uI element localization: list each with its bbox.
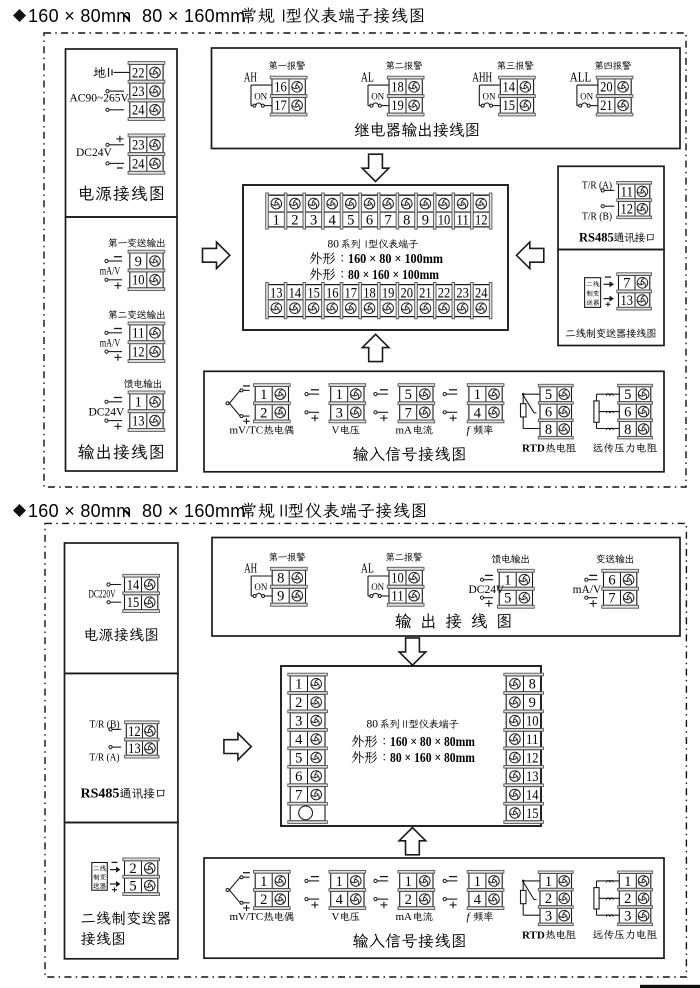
svg-text:3: 3 xyxy=(310,213,317,229)
svg-text:ON: ON xyxy=(580,91,593,101)
svg-text:mV/TC: mV/TC xyxy=(230,425,264,437)
svg-text:13: 13 xyxy=(621,293,634,309)
svg-text:24: 24 xyxy=(132,156,145,172)
svg-text:19: 19 xyxy=(391,98,404,114)
svg-text:11: 11 xyxy=(132,326,145,342)
svg-text:9: 9 xyxy=(529,695,536,711)
svg-text:22: 22 xyxy=(438,285,451,301)
svg-text:11: 11 xyxy=(391,589,404,605)
svg-text:23: 23 xyxy=(456,285,469,301)
svg-text:mV/TC: mV/TC xyxy=(230,911,264,923)
svg-text:80: 80 xyxy=(328,239,340,251)
svg-text:ON: ON xyxy=(254,582,267,592)
svg-text:4: 4 xyxy=(336,892,344,908)
svg-text:6: 6 xyxy=(295,769,302,785)
svg-text:7: 7 xyxy=(608,591,615,607)
svg-text:13: 13 xyxy=(132,414,145,430)
svg-text:7: 7 xyxy=(405,405,412,421)
svg-text:12: 12 xyxy=(475,213,488,229)
svg-text:7: 7 xyxy=(384,213,391,229)
svg-text:1: 1 xyxy=(504,573,511,589)
svg-text:9: 9 xyxy=(135,254,142,270)
svg-text:ON: ON xyxy=(371,91,384,101)
svg-text:11: 11 xyxy=(456,213,469,229)
svg-text:20: 20 xyxy=(400,285,413,301)
svg-text:mA/V: mA/V xyxy=(573,584,602,596)
svg-text:DC24V: DC24V xyxy=(89,406,125,418)
svg-text:RTD: RTD xyxy=(522,443,545,455)
svg-text:mA: mA xyxy=(396,911,413,923)
svg-text:15: 15 xyxy=(503,98,516,114)
svg-text:160 × 80 × 80mm: 160 × 80 × 80mm xyxy=(390,735,475,750)
svg-text:13: 13 xyxy=(526,769,539,785)
svg-text:AL: AL xyxy=(361,70,374,85)
svg-text:3: 3 xyxy=(336,405,343,421)
svg-text:24: 24 xyxy=(475,285,488,301)
svg-text:16: 16 xyxy=(274,80,287,96)
svg-text:1: 1 xyxy=(295,677,302,693)
svg-text:6: 6 xyxy=(624,405,631,421)
svg-text:7: 7 xyxy=(295,787,302,803)
svg-text:80 × 160mm: 80 × 160mm xyxy=(142,6,246,26)
svg-text:4: 4 xyxy=(474,405,482,421)
svg-text:RS485: RS485 xyxy=(81,787,120,802)
svg-text:T/R (A): T/R (A) xyxy=(582,180,612,192)
svg-text:AC90~265V: AC90~265V xyxy=(70,93,130,105)
svg-text:1: 1 xyxy=(545,874,552,890)
svg-text:12: 12 xyxy=(132,345,145,361)
svg-text:5: 5 xyxy=(129,878,136,894)
svg-text:14: 14 xyxy=(503,80,516,96)
svg-text:22: 22 xyxy=(132,65,145,81)
svg-text:DC220V: DC220V xyxy=(89,589,116,601)
svg-text:ON: ON xyxy=(254,91,267,101)
svg-text:14: 14 xyxy=(526,787,539,803)
svg-text:5: 5 xyxy=(545,387,552,403)
svg-text:80 × 160mm: 80 × 160mm xyxy=(142,501,246,521)
svg-text:23: 23 xyxy=(132,84,145,100)
svg-text:8: 8 xyxy=(624,422,631,438)
svg-text:19: 19 xyxy=(382,285,395,301)
svg-text:7: 7 xyxy=(623,276,630,292)
svg-text:14: 14 xyxy=(127,577,140,593)
svg-text:24: 24 xyxy=(132,103,145,119)
svg-text:V: V xyxy=(332,911,340,923)
svg-text:4: 4 xyxy=(329,213,337,229)
svg-text:T/R (A): T/R (A) xyxy=(90,752,120,764)
svg-text:2: 2 xyxy=(295,695,302,711)
svg-text:1: 1 xyxy=(135,395,142,411)
svg-text:4: 4 xyxy=(474,892,482,908)
svg-text:20: 20 xyxy=(600,80,613,96)
svg-text:17: 17 xyxy=(274,98,287,114)
svg-text:2: 2 xyxy=(405,892,412,908)
svg-text:11: 11 xyxy=(526,732,539,748)
svg-text:9: 9 xyxy=(422,213,429,229)
svg-text:2: 2 xyxy=(291,213,298,229)
svg-text:2: 2 xyxy=(545,891,552,907)
svg-text:5: 5 xyxy=(624,387,631,403)
svg-text:8: 8 xyxy=(545,422,552,438)
svg-text:2: 2 xyxy=(260,892,267,908)
svg-text:1: 1 xyxy=(273,213,280,229)
svg-text:3: 3 xyxy=(624,909,631,925)
svg-text:160 × 80mm: 160 × 80mm xyxy=(28,6,132,26)
svg-text:T/R (B): T/R (B) xyxy=(582,211,612,223)
svg-text:13: 13 xyxy=(270,285,283,301)
svg-text:1: 1 xyxy=(260,874,267,890)
svg-text:2: 2 xyxy=(129,861,136,877)
svg-text:17: 17 xyxy=(345,285,358,301)
svg-text:AHH: AHH xyxy=(472,70,492,85)
svg-text:DC24V: DC24V xyxy=(469,584,505,596)
svg-text:5: 5 xyxy=(347,213,354,229)
svg-text:16: 16 xyxy=(326,285,339,301)
svg-text:8: 8 xyxy=(529,677,536,693)
svg-text:21: 21 xyxy=(419,285,432,301)
svg-text:160 × 80 × 100mm: 160 × 80 × 100mm xyxy=(348,252,443,267)
svg-text:1: 1 xyxy=(474,874,481,890)
svg-text:12: 12 xyxy=(128,724,141,740)
svg-text:1: 1 xyxy=(336,874,343,890)
svg-text:8: 8 xyxy=(277,571,284,587)
svg-text:4: 4 xyxy=(295,732,303,748)
svg-text:3: 3 xyxy=(545,909,552,925)
svg-text:T/R (B): T/R (B) xyxy=(90,719,120,731)
svg-text:3: 3 xyxy=(295,714,302,730)
svg-text:9: 9 xyxy=(277,589,284,605)
svg-text:11: 11 xyxy=(621,184,634,200)
svg-text:V: V xyxy=(332,425,340,437)
svg-text:12: 12 xyxy=(621,202,634,218)
svg-text:15: 15 xyxy=(526,806,539,822)
svg-text:10: 10 xyxy=(391,571,404,587)
svg-text:ALL: ALL xyxy=(570,70,592,85)
svg-text:5: 5 xyxy=(405,387,412,403)
svg-text:18: 18 xyxy=(363,285,376,301)
svg-text:160 × 80mm: 160 × 80mm xyxy=(28,501,132,521)
svg-text:10: 10 xyxy=(132,273,145,289)
svg-text:ON: ON xyxy=(483,91,496,101)
svg-text:1: 1 xyxy=(260,387,267,403)
svg-text:80: 80 xyxy=(367,719,379,731)
svg-text:AH: AH xyxy=(244,70,257,85)
svg-text:mA/V: mA/V xyxy=(100,337,121,349)
svg-text:8: 8 xyxy=(403,213,410,229)
svg-text:10: 10 xyxy=(526,714,539,730)
svg-text:mA/V: mA/V xyxy=(100,266,121,278)
svg-text:1: 1 xyxy=(474,387,481,403)
svg-text:2: 2 xyxy=(260,405,267,421)
svg-text:10: 10 xyxy=(438,213,451,229)
svg-text:23: 23 xyxy=(132,138,145,154)
svg-text:2: 2 xyxy=(624,891,631,907)
svg-text:6: 6 xyxy=(366,213,373,229)
svg-text:RS485: RS485 xyxy=(579,230,614,244)
svg-text:6: 6 xyxy=(545,405,552,421)
svg-text:1: 1 xyxy=(405,874,412,890)
svg-text:80 × 160 × 100mm: 80 × 160 × 100mm xyxy=(348,268,439,283)
svg-text:AH: AH xyxy=(244,561,257,576)
svg-text:15: 15 xyxy=(127,595,140,611)
svg-text:mA: mA xyxy=(396,425,413,437)
svg-text:21: 21 xyxy=(600,98,613,114)
svg-text:5: 5 xyxy=(295,751,302,767)
svg-text:13: 13 xyxy=(128,741,141,757)
svg-text:15: 15 xyxy=(307,285,320,301)
svg-text:DC24V: DC24V xyxy=(76,147,112,159)
svg-text:18: 18 xyxy=(391,80,404,96)
svg-text:14: 14 xyxy=(289,285,302,301)
svg-text:1: 1 xyxy=(336,387,343,403)
svg-text:12: 12 xyxy=(526,751,539,767)
svg-text:6: 6 xyxy=(608,573,615,589)
svg-text:AL: AL xyxy=(361,561,374,576)
svg-text:ON: ON xyxy=(371,582,384,592)
svg-text:5: 5 xyxy=(504,591,511,607)
svg-text:RTD: RTD xyxy=(522,929,545,941)
svg-text:80 × 160 × 80mm: 80 × 160 × 80mm xyxy=(390,751,475,766)
svg-text:1: 1 xyxy=(624,874,631,890)
